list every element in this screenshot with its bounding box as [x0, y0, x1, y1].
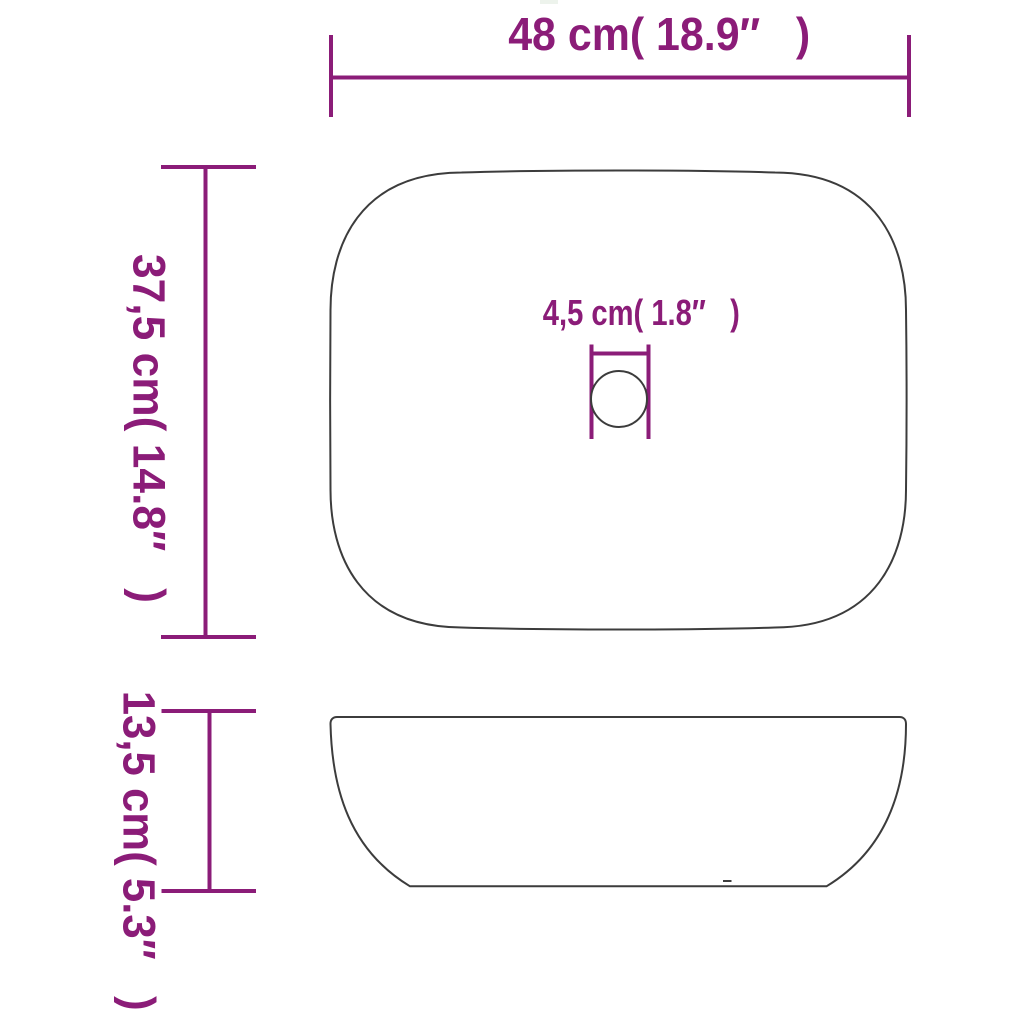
- svg-text:37,5 cm( 14.8″ ): 37,5 cm( 14.8″ ): [124, 254, 175, 603]
- svg-text:48 cm( 18.9″ ): 48 cm( 18.9″ ): [508, 8, 810, 60]
- svg-text:4,5 cm( 1.8″ ): 4,5 cm( 1.8″ ): [543, 292, 740, 333]
- svg-text:13,5 cm( 5.3″ ): 13,5 cm( 5.3″ ): [114, 691, 165, 1011]
